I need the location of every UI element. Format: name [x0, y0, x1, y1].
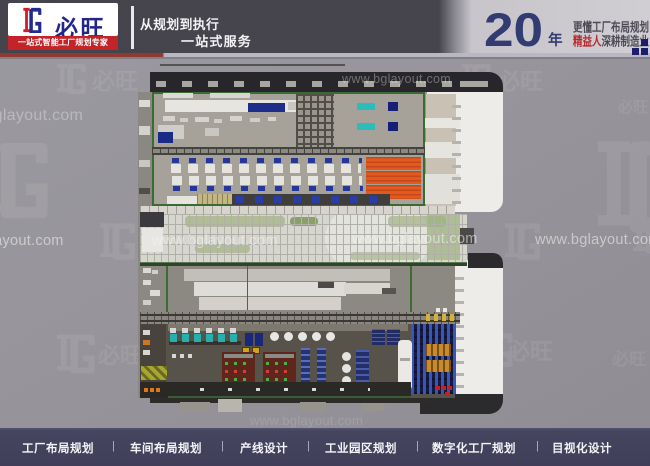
svg-text:必旺: 必旺 [617, 98, 648, 116]
svg-text:必旺: 必旺 [98, 343, 142, 368]
svg-text:必旺: 必旺 [611, 349, 646, 369]
svg-text:必旺: 必旺 [497, 68, 543, 94]
svg-text:必旺: 必旺 [92, 68, 138, 94]
svg-text:必旺: 必旺 [507, 338, 553, 364]
